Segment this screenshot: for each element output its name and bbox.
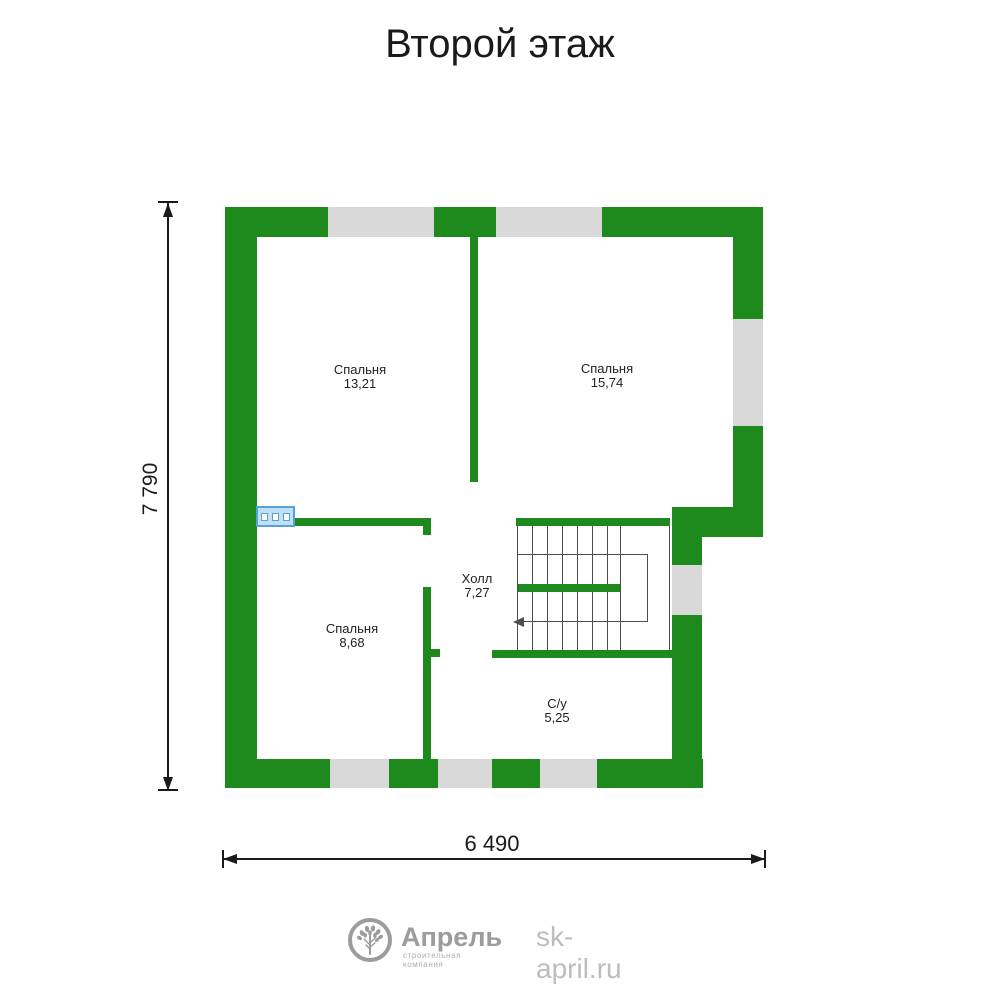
stair-outline-inner — [620, 526, 621, 650]
stair-flight-top — [517, 526, 620, 554]
window-bottom-3 — [540, 759, 597, 788]
window-top-1 — [328, 207, 434, 237]
stair-flight-mid-lower — [517, 592, 620, 621]
wall-bedroom3-top-stub — [423, 526, 431, 535]
room-name: С/у — [544, 697, 569, 711]
dimension-line — [167, 203, 169, 791]
room-label-bedroom1: Спальня 13,21 — [334, 363, 386, 391]
wall-stairwell-bottom — [492, 650, 672, 658]
stair-landing-divider-wall — [517, 584, 620, 592]
arrow-down-icon — [163, 777, 173, 791]
tree-icon — [355, 924, 385, 956]
stair-outline-right — [669, 526, 670, 650]
radiator-cell — [283, 513, 290, 521]
room-label-bedroom2: Спальня 15,74 — [581, 362, 633, 390]
radiator-icon — [256, 506, 295, 527]
company-logo — [348, 918, 392, 962]
room-name: Спальня — [334, 363, 386, 377]
stair-landing-edge — [647, 554, 648, 622]
radiator-cell — [261, 513, 268, 521]
stair-direction-arrow-icon — [513, 617, 524, 627]
room-area: 8,68 — [326, 636, 378, 650]
wall-top — [225, 207, 763, 237]
stair-flight-bottom — [517, 622, 620, 650]
room-label-bedroom3: Спальня 8,68 — [326, 622, 378, 650]
wall-bedroom3-right-stub — [431, 649, 440, 657]
stair-outline-h-upper — [517, 554, 648, 555]
stair-outline-left — [517, 526, 518, 650]
wall-left — [225, 207, 257, 788]
dimension-line — [223, 858, 766, 860]
wall-bedroom3-right — [423, 587, 431, 759]
room-area: 13,21 — [334, 377, 386, 391]
window-top-2 — [496, 207, 602, 237]
room-label-bathroom: С/у 5,25 — [544, 697, 569, 725]
room-area: 7,27 — [462, 586, 493, 600]
room-name: Холл — [462, 572, 493, 586]
wall-stairwell-top — [516, 518, 670, 526]
room-label-hall: Холл 7,27 — [462, 572, 493, 600]
window-right-upper — [733, 319, 763, 426]
arrow-up-icon — [163, 203, 173, 217]
company-tagline: строительная компания — [403, 951, 461, 969]
dimension-value-horizontal: 6 490 — [464, 831, 519, 857]
radiator-cell — [272, 513, 279, 521]
website-url: sk-april.ru — [536, 921, 622, 985]
window-bottom-2 — [438, 759, 492, 788]
wall-bedroom1-bedroom2 — [470, 237, 478, 482]
room-area: 15,74 — [581, 376, 633, 390]
wall-right-lower — [672, 507, 702, 788]
stair-flight-mid-upper — [517, 554, 620, 584]
window-bottom-1 — [330, 759, 389, 788]
floor-plan-page: Второй этаж — [0, 0, 1000, 1000]
room-name: Спальня — [581, 362, 633, 376]
arrow-right-icon — [751, 854, 765, 864]
dimension-value-vertical: 7 790 — [139, 463, 163, 516]
room-area: 5,25 — [544, 711, 569, 725]
company-name: Апрель — [401, 922, 502, 953]
stair-outline-h-lower — [517, 621, 648, 622]
window-right-lower — [672, 565, 702, 615]
room-name: Спальня — [326, 622, 378, 636]
arrow-left-icon — [223, 854, 237, 864]
